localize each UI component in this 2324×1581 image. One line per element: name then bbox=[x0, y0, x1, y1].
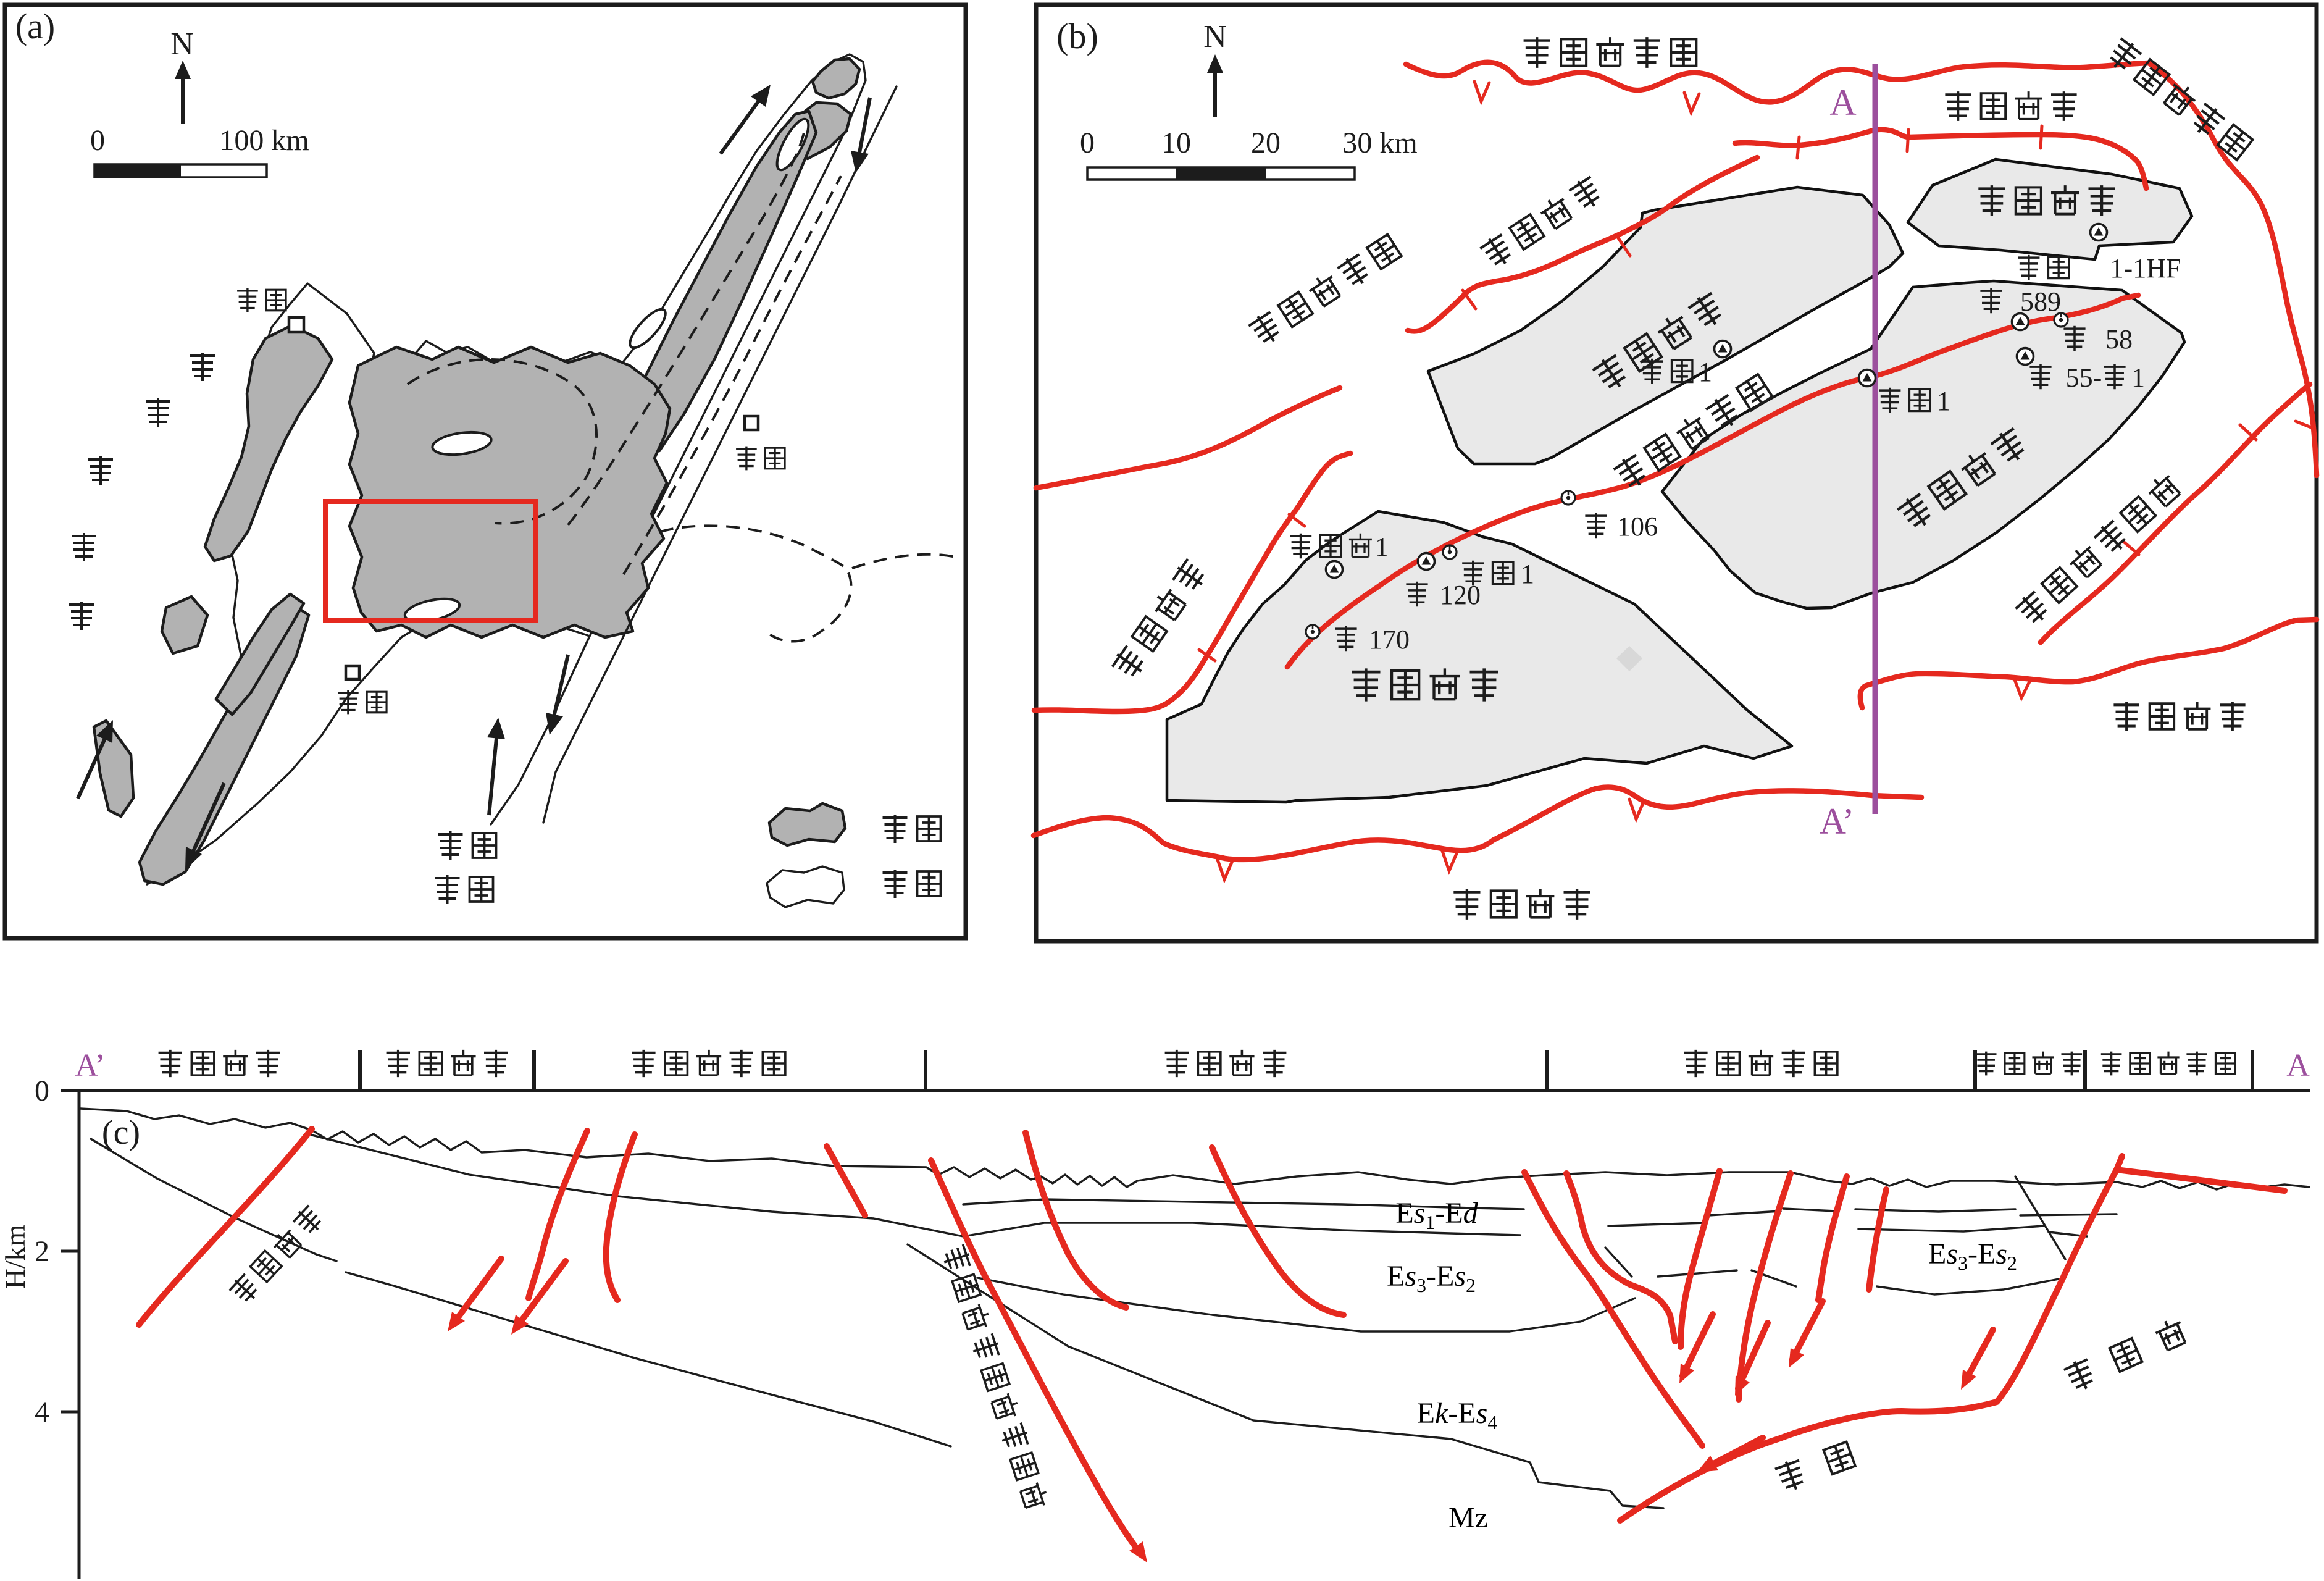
svg-text:(a): (a) bbox=[15, 6, 55, 46]
svg-text:(b): (b) bbox=[1056, 16, 1098, 56]
svg-text:0: 0 bbox=[1080, 127, 1095, 159]
svg-text:589: 589 bbox=[2020, 287, 2061, 317]
svg-text:1-1HF: 1-1HF bbox=[2110, 253, 2181, 283]
svg-text:N: N bbox=[1203, 19, 1227, 54]
svg-text:1: 1 bbox=[1375, 532, 1389, 562]
svg-text:Es1-Ed: Es1-Ed bbox=[1395, 1197, 1478, 1233]
svg-text:Es3-Es2: Es3-Es2 bbox=[1928, 1238, 2017, 1274]
svg-text:2: 2 bbox=[35, 1235, 49, 1268]
svg-text:1: 1 bbox=[1521, 559, 1534, 589]
svg-text:A’: A’ bbox=[75, 1048, 105, 1083]
svg-text:A: A bbox=[2286, 1048, 2310, 1083]
svg-text:N: N bbox=[170, 27, 194, 62]
svg-text:1: 1 bbox=[1699, 357, 1712, 387]
svg-text:0: 0 bbox=[90, 124, 105, 157]
svg-text:120: 120 bbox=[1440, 580, 1481, 610]
svg-text:A’: A’ bbox=[1820, 801, 1855, 842]
svg-text:20: 20 bbox=[1251, 127, 1281, 159]
svg-text:106: 106 bbox=[1617, 511, 1658, 542]
svg-text:170: 170 bbox=[1369, 624, 1410, 655]
svg-text:55-: 55- bbox=[2066, 363, 2102, 393]
svg-text:(c): (c) bbox=[102, 1113, 140, 1152]
svg-text:A: A bbox=[1829, 82, 1856, 123]
svg-text:4: 4 bbox=[35, 1396, 49, 1428]
svg-text:Mz: Mz bbox=[1448, 1501, 1488, 1534]
svg-text:58: 58 bbox=[2105, 324, 2133, 354]
svg-text:Es3-Es2: Es3-Es2 bbox=[1387, 1260, 1476, 1296]
svg-text:1: 1 bbox=[1937, 386, 1950, 416]
svg-text:100 km: 100 km bbox=[219, 124, 309, 157]
svg-text:30 km: 30 km bbox=[1342, 127, 1417, 159]
svg-text:1: 1 bbox=[2131, 363, 2145, 393]
svg-text:0: 0 bbox=[35, 1075, 49, 1107]
svg-text:Ek-Es4: Ek-Es4 bbox=[1417, 1397, 1498, 1433]
svg-text:H/km: H/km bbox=[0, 1224, 31, 1289]
svg-text:10: 10 bbox=[1161, 127, 1191, 159]
